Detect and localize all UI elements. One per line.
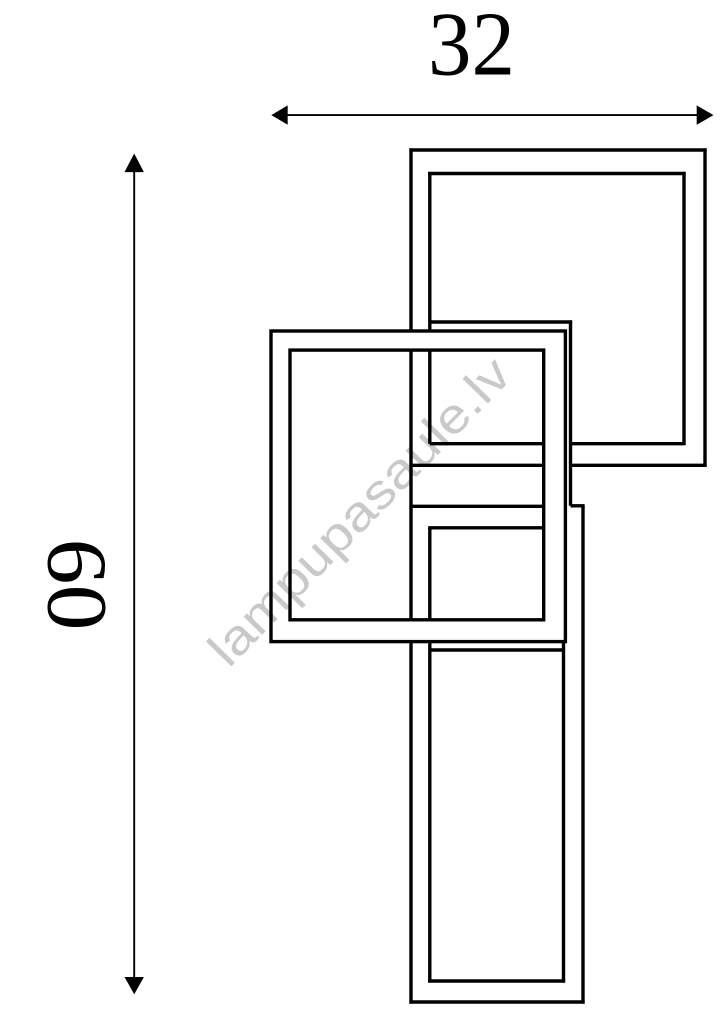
svg-text:60: 60 (30, 539, 126, 631)
svg-text:32: 32 (428, 0, 515, 95)
